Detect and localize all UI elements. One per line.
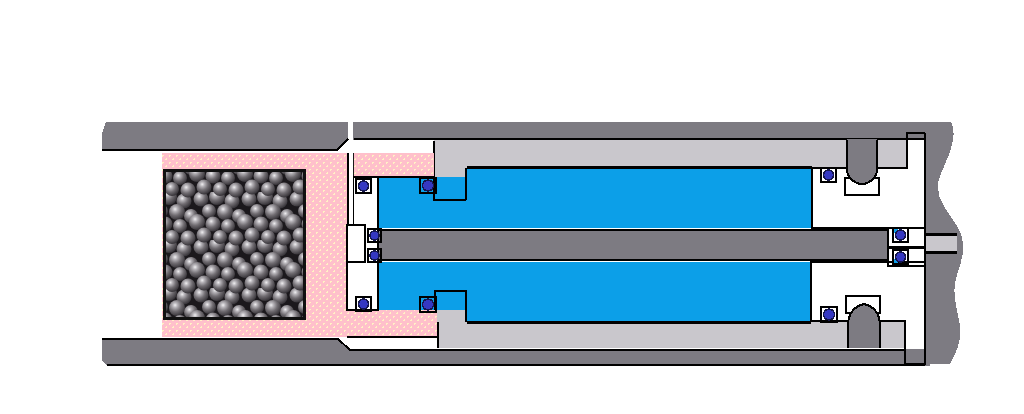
diagram-canvas — [0, 0, 1024, 414]
piston-rod — [377, 231, 888, 259]
outer-tube-top-left — [102, 122, 348, 151]
o-ring-piston-top — [359, 181, 369, 191]
rod-bore — [926, 236, 957, 251]
o-ring-piston-bottom — [359, 299, 369, 309]
shot-piston-sleeve-bottom — [347, 310, 437, 337]
fluid-chamber-lower — [467, 262, 811, 321]
cross-section-diagram — [0, 0, 1024, 414]
set-screw-top — [847, 139, 877, 185]
o-ring-float-top — [824, 170, 834, 180]
o-ring-float-bottom — [824, 309, 835, 320]
outer-tube-top-right — [353, 122, 950, 140]
shot-piston-sleeve-top — [353, 153, 434, 177]
shot-fill — [164, 170, 304, 318]
o-ring-boss-top — [423, 180, 434, 191]
o-ring-boss-bottom — [423, 299, 434, 310]
o-ring-rod-left-upper — [370, 231, 379, 240]
o-ring-rod-left-lower — [370, 251, 379, 260]
separation-gap — [349, 122, 354, 225]
o-ring-rod-end-lower — [896, 252, 906, 262]
fluid-chamber-upper — [467, 168, 812, 228]
o-ring-rod-end-upper — [896, 230, 906, 240]
